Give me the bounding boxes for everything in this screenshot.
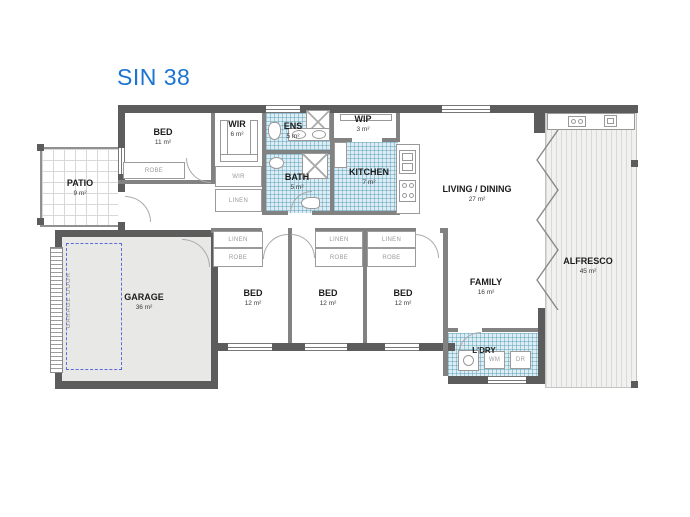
wall-family-laundry-a [448, 328, 458, 332]
room-area: 12 m² [368, 300, 438, 308]
robe-label: ROBE [229, 255, 247, 261]
entry-opening [118, 192, 125, 222]
room-name: L'DRY [454, 346, 514, 356]
bed3-robe: ROBE [315, 248, 363, 267]
patio-post [37, 218, 44, 225]
room-area: 9 m² [45, 190, 115, 198]
room-label-patio: PATIO 9 m² [45, 178, 115, 198]
robe-label: ROBE [145, 168, 163, 174]
room-area: 36 m² [104, 304, 184, 312]
bed4-door-swing [415, 234, 439, 258]
room-label-alfresco: ALFRESCO 45 m² [548, 256, 628, 276]
room-area: 5 m² [267, 184, 327, 192]
fridge-space [334, 142, 347, 168]
wir-closet-label: WIR [232, 174, 245, 180]
dr-label: DR [516, 357, 525, 363]
room-label-kitchen: KITCHEN 7 m² [334, 167, 404, 187]
wall-top [118, 105, 638, 113]
cooktop-burner [409, 183, 414, 188]
bed2-robe: ROBE [213, 248, 263, 267]
room-name: BED [368, 288, 438, 300]
wir-shelf [220, 154, 258, 162]
room-area: 5 m² [263, 133, 323, 141]
room-area: 45 m² [548, 268, 628, 276]
room-name: ALFRESCO [548, 256, 628, 268]
alfresco-bench [547, 113, 635, 130]
garage-door [50, 247, 63, 373]
room-label-wip: WIP 3 m² [333, 114, 393, 134]
room-label-ens: ENS 5 m² [263, 121, 323, 141]
entry-door-swing [125, 196, 151, 222]
cooktop-burner [409, 193, 414, 198]
bed4-robe: ROBE [367, 248, 416, 267]
room-name: ENS [263, 121, 323, 133]
robe-label: ROBE [382, 255, 400, 261]
room-area: 11 m² [128, 139, 198, 147]
wall-family-left [443, 228, 448, 376]
room-area: 6 m² [207, 131, 267, 139]
room-label-bed4: BED 12 m² [368, 288, 438, 308]
room-area: 16 m² [446, 289, 526, 297]
linen-label: LINEN [229, 198, 248, 204]
wm-label: WM [489, 357, 500, 363]
window-bed3 [305, 343, 347, 351]
bed3-door-swing [291, 234, 315, 258]
room-name: WIR [207, 119, 267, 131]
patio-post [37, 144, 44, 151]
room-area: 27 m² [417, 196, 537, 204]
room-label-ldry: L'DRY [454, 346, 514, 356]
bed1-robe: ROBE [123, 162, 185, 179]
window-laundry [488, 376, 526, 384]
room-name: KITCHEN [334, 167, 404, 179]
room-label-bed2: BED 12 m² [218, 288, 288, 308]
wall-garage-bottom [55, 381, 218, 389]
plan-title: SIN 38 [117, 64, 190, 91]
window-ensuite [266, 105, 300, 113]
alfresco-post [631, 381, 638, 388]
room-label-bath: BATH 5 m² [267, 172, 327, 192]
wall-hall-top-b [312, 211, 400, 215]
room-name: GARAGE [104, 292, 184, 304]
room-name: BATH [267, 172, 327, 184]
alfresco-post [631, 160, 638, 167]
linen-label: LINEN [382, 237, 401, 243]
bbq-icon [568, 116, 586, 127]
wall-garage-top [55, 230, 218, 237]
robe-label: ROBE [330, 255, 348, 261]
room-label-living: LIVING / DINING 27 m² [417, 184, 537, 204]
room-area: 12 m² [293, 300, 363, 308]
room-label-wir: WIR 6 m² [207, 119, 267, 139]
outdoor-sink-icon [604, 115, 617, 127]
bed2-door-swing [263, 234, 288, 259]
sink-bowl [607, 118, 614, 124]
garage-door-label: GARAGE DOOR [66, 272, 72, 328]
linen-label: LINEN [228, 237, 247, 243]
room-area: 7 m² [334, 179, 404, 187]
room-name: LIVING / DINING [417, 184, 537, 196]
stacker-door-icon [534, 130, 560, 310]
basin-icon [269, 157, 284, 169]
bbq-burner [571, 119, 576, 124]
room-label-bed1: BED 11 m² [128, 127, 198, 147]
bbq-burner [578, 119, 583, 124]
room-name: BED [128, 127, 198, 139]
room-name: WIP [333, 114, 393, 126]
room-name: BED [218, 288, 288, 300]
window-bed4 [385, 343, 419, 351]
bed4-linen: LINEN [367, 231, 416, 248]
room-area: 3 m² [333, 126, 393, 134]
floor-plan: SIN 38 GARAGE DOOR [0, 0, 690, 517]
room-label-garage: GARAGE 36 m² [104, 292, 184, 312]
wall-family-laundry-b [482, 328, 538, 332]
room-area: 12 m² [218, 300, 288, 308]
room-name: PATIO [45, 178, 115, 190]
bed3-linen: LINEN [315, 231, 363, 248]
wall-wip-right [396, 113, 400, 142]
tub-bowl [463, 355, 474, 366]
window-living [442, 105, 490, 113]
wall-hall-top-a [262, 211, 288, 215]
room-name: FAMILY [446, 277, 526, 289]
cooktop-burner [402, 193, 407, 198]
wall-right [538, 308, 545, 384]
linen-label: LINEN [329, 237, 348, 243]
sink-bowl [402, 153, 413, 161]
hall-linen-closet: LINEN [215, 189, 262, 212]
hall-wir-closet: WIR [215, 166, 262, 187]
bed2-linen: LINEN [213, 231, 263, 248]
window-bed2 [228, 343, 272, 351]
room-label-family: FAMILY 16 m² [446, 277, 526, 297]
room-name: BED [293, 288, 363, 300]
room-label-bed3: BED 12 m² [293, 288, 363, 308]
